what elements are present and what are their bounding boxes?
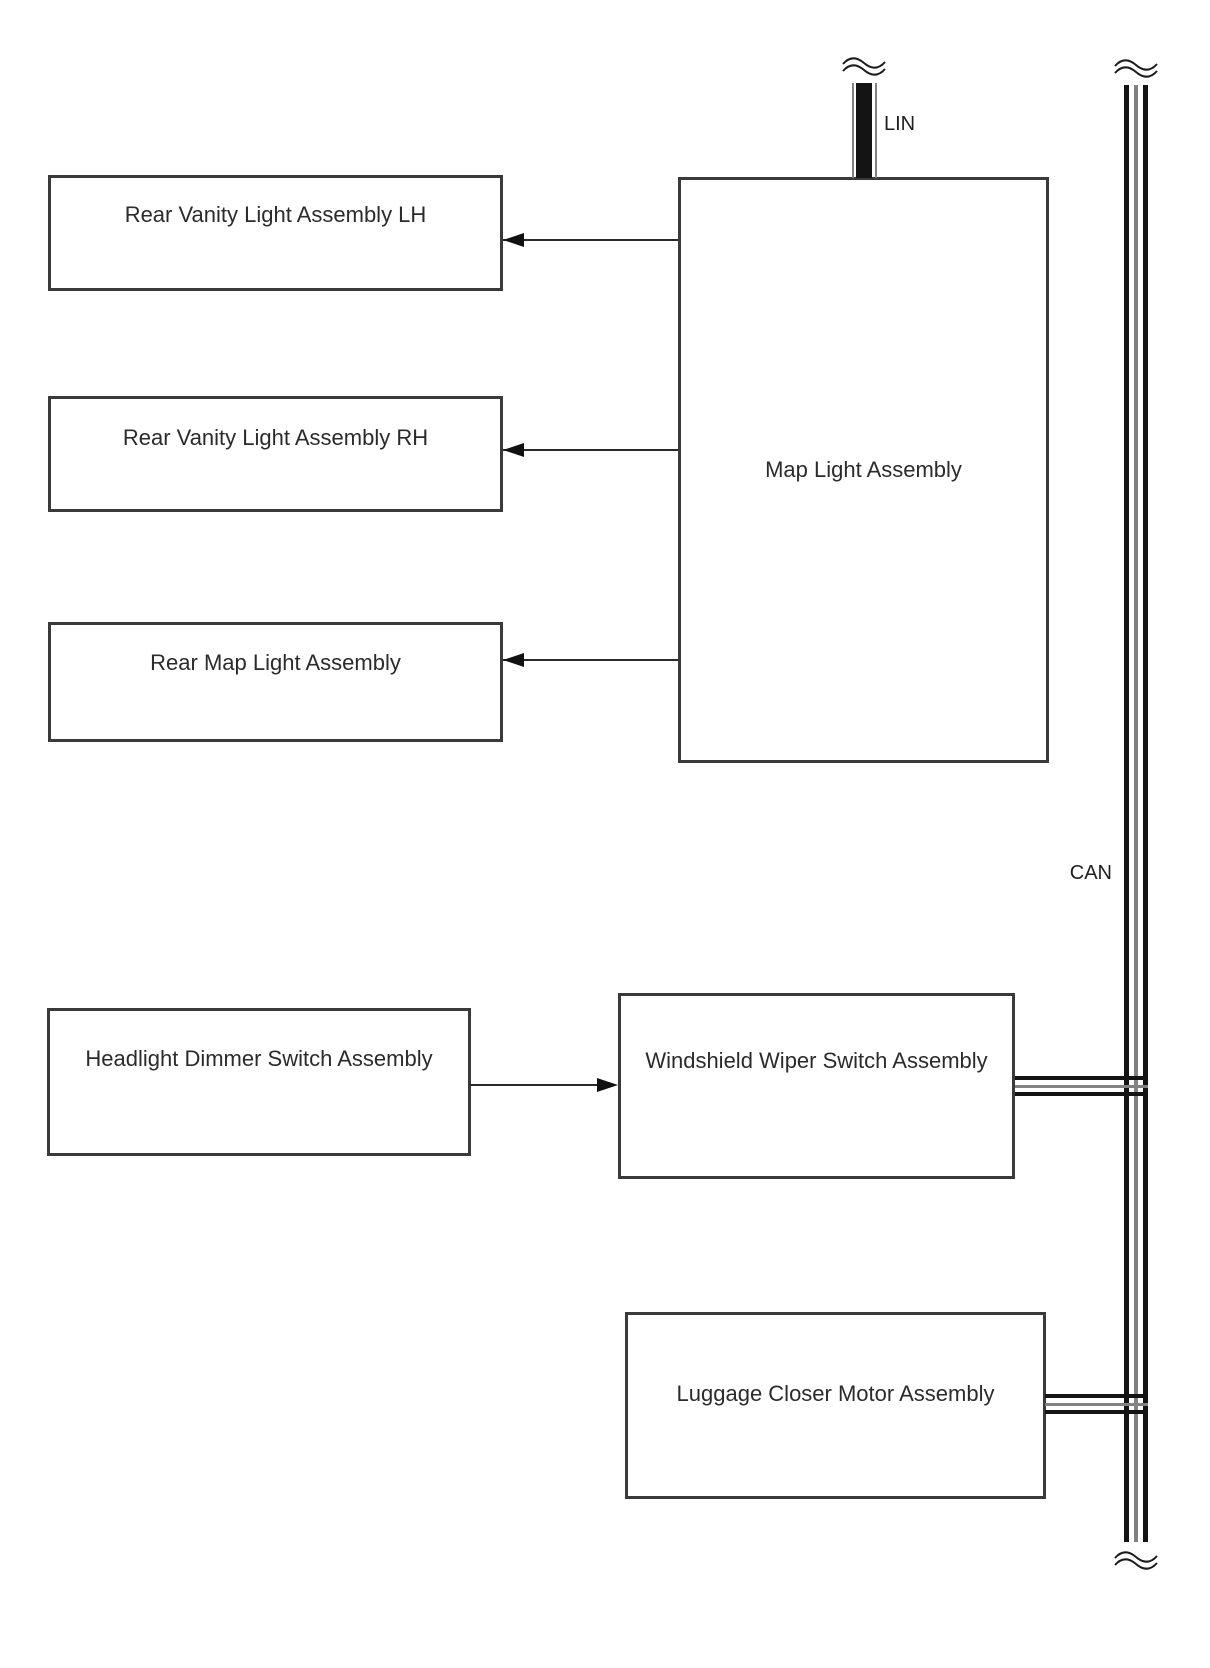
box-label: Headlight Dimmer Switch Assembly [50, 1046, 468, 1072]
box-map-light-assembly: Map Light Assembly [678, 177, 1049, 763]
luggage-can-stub-bottom [1045, 1410, 1148, 1414]
arrow-line-dimmer-to-wiper [470, 1084, 598, 1086]
box-label: Rear Map Light Assembly [51, 650, 500, 676]
box-label: Windshield Wiper Switch Assembly [621, 1048, 1012, 1074]
box-label: Luggage Closer Motor Assembly [628, 1381, 1043, 1407]
arrowhead-to-rear-vanity-rh [503, 443, 524, 457]
lin-bus-label: LIN [884, 113, 915, 136]
luggage-can-stub-middle [1045, 1403, 1148, 1406]
lin-line-outline-right [875, 83, 877, 178]
box-label: Map Light Assembly [765, 457, 962, 483]
system-diagram-page: Rear Vanity Light Assembly LH Rear Vanit… [0, 0, 1210, 1668]
luggage-can-stub-top [1045, 1394, 1148, 1398]
lin-line-outline-left [852, 83, 854, 178]
box-luggage-closer-motor-assembly: Luggage Closer Motor Assembly [625, 1312, 1046, 1499]
arrowhead-dimmer-to-wiper [597, 1078, 618, 1092]
arrowhead-to-rear-map-light [503, 653, 524, 667]
wiper-can-stub-middle [1015, 1085, 1148, 1088]
can-bus-line-right [1143, 85, 1148, 1542]
box-windshield-wiper-switch-assembly: Windshield Wiper Switch Assembly [618, 993, 1015, 1179]
arrowhead-to-rear-vanity-lh [503, 233, 524, 247]
can-break-squiggle-bottom-icon [1112, 1548, 1160, 1574]
box-rear-vanity-light-assembly-lh: Rear Vanity Light Assembly LH [48, 175, 503, 291]
box-rear-vanity-light-assembly-rh: Rear Vanity Light Assembly RH [48, 396, 503, 512]
box-headlight-dimmer-switch-assembly: Headlight Dimmer Switch Assembly [47, 1008, 471, 1156]
can-bus-line-left [1124, 85, 1129, 1542]
arrow-line-to-rear-vanity-lh [503, 239, 678, 241]
lin-line-core [856, 83, 872, 178]
arrow-line-to-rear-map-light [503, 659, 678, 661]
lin-break-squiggle-icon [840, 54, 888, 80]
wiper-can-stub-top [1015, 1076, 1148, 1080]
wiper-can-stub-bottom [1015, 1092, 1148, 1096]
box-label: Rear Vanity Light Assembly LH [51, 202, 500, 228]
can-bus-line-middle [1134, 85, 1138, 1542]
box-label: Rear Vanity Light Assembly RH [51, 425, 500, 451]
box-rear-map-light-assembly: Rear Map Light Assembly [48, 622, 503, 742]
arrow-line-to-rear-vanity-rh [503, 449, 678, 451]
can-bus-label: CAN [1012, 862, 1112, 885]
can-break-squiggle-top-icon [1112, 56, 1160, 82]
